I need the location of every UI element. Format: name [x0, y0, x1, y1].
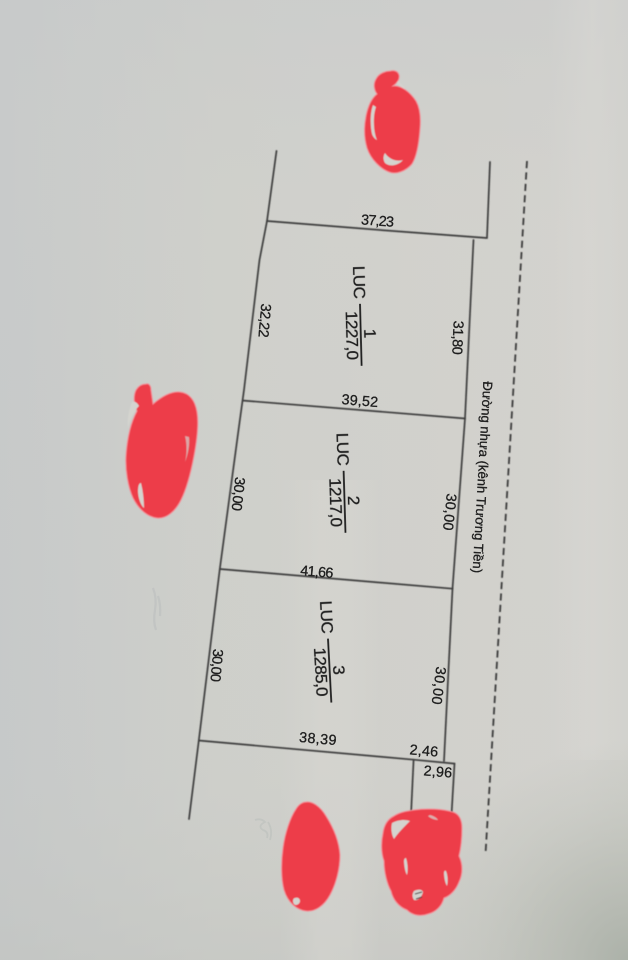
svg-text:2,96: 2,96 [423, 763, 453, 781]
svg-text:1217,0: 1217,0 [325, 478, 345, 528]
svg-text:1227,0: 1227,0 [342, 311, 362, 360]
svg-text:2,46: 2,46 [409, 742, 439, 760]
svg-text:31,80: 31,80 [448, 320, 465, 355]
svg-text:30,00: 30,00 [206, 648, 225, 682]
svg-text:LUC: LUC [349, 266, 369, 299]
svg-text:1: 1 [360, 329, 379, 339]
svg-text:38,39: 38,39 [298, 730, 337, 749]
svg-text:LUC: LUC [333, 433, 353, 467]
svg-text:LUC: LUC [316, 600, 337, 634]
svg-text:37,23: 37,23 [360, 212, 394, 230]
svg-text:3: 3 [329, 665, 348, 675]
svg-text:2: 2 [344, 496, 363, 506]
svg-text:41,66: 41,66 [300, 563, 334, 582]
svg-text:1285,0: 1285,0 [310, 647, 332, 697]
svg-text:32,22: 32,22 [254, 303, 273, 338]
svg-text:39,52: 39,52 [341, 392, 379, 411]
